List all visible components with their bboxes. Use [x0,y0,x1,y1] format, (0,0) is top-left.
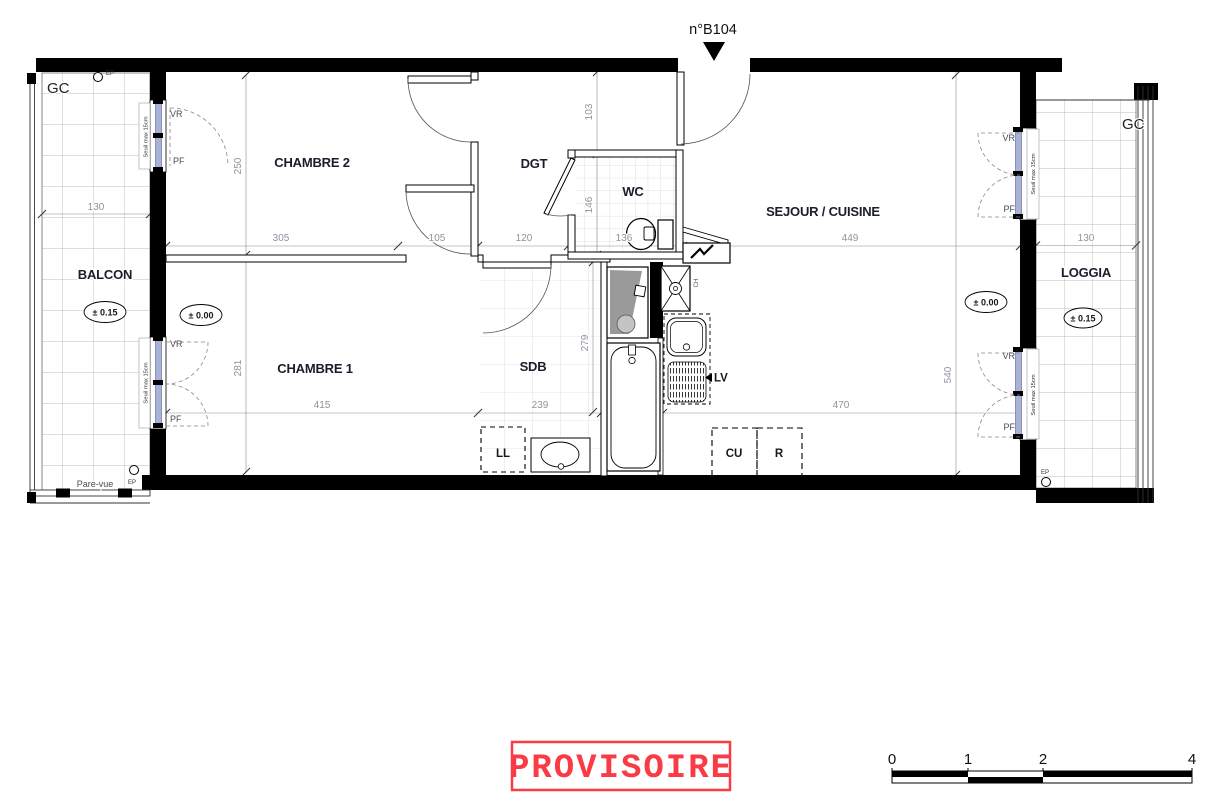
bathtub-icon [607,343,660,471]
chambre1-door-swing [406,192,472,254]
level-loggia: ± 0.15 [1064,308,1102,328]
svg-text:EP: EP [106,71,114,77]
dim-chambre2-width: 305 [273,233,290,244]
dim-balcon-width: 130 [88,202,105,213]
electrical-panel-icon [683,227,730,263]
chambre2-door-swing [408,79,471,142]
washing-machine-label: LL [496,448,510,460]
dim-sdb-width: 239 [532,400,549,411]
stamp-text: PROVISOIRE [509,750,733,788]
pf-label-d: PF [1003,422,1015,432]
scale-bar: 0 1 2 4 [888,751,1196,783]
dim-chambre2-height: 250 [233,157,244,174]
scale-label-1: 1 [964,751,972,768]
pf-label-c: PF [1003,204,1015,214]
room-label-chambre1: CHAMBRE 1 [277,361,352,376]
kitchen-sink-icon [664,314,710,404]
svg-text:± 0.00: ± 0.00 [974,298,999,308]
level-sejour: ± 0.00 [965,292,1007,313]
entrance-marker: n°B104 [689,22,737,61]
svg-text:± 0.15: ± 0.15 [1071,314,1096,324]
seuil-label-a: Seuil max 15cm [144,116,150,157]
seuil-label-d: Seuil max 15cm [1031,374,1037,415]
dim-dgt-width: 120 [516,233,533,244]
floor-plan-page: n°B104 CHAMBRE 2 DGT WC SEJOUR / CUISINE… [0,0,1207,800]
gc-right-label: GC [1122,116,1145,133]
pf-label-a: PF [173,156,185,166]
dishwasher-label: LV [714,373,728,385]
scale-label-0: 0 [888,751,896,768]
room-label-loggia: LOGGIA [1061,265,1112,280]
dim-dgt-height: 103 [584,103,595,120]
unit-number-label: n°B104 [689,22,737,38]
dim-sejour-width: 449 [842,233,859,244]
chambre2-door-leaf [408,76,471,83]
room-label-chambre2: CHAMBRE 2 [274,155,349,170]
entrance-door-swing [681,74,750,144]
room-label-sdb: SDB [520,359,547,374]
seuil-label-c: Seuil max 15cm [1031,153,1037,194]
level-chambre1: ± 0.00 [180,305,222,326]
seuil-label-b: Seuil max 15cm [144,362,150,403]
entrance-door-leaf [677,72,684,145]
svg-text:EP: EP [128,480,136,486]
dim-door: 105 [429,233,446,244]
svg-text:± 0.00: ± 0.00 [189,311,214,321]
pf-label-b: PF [170,414,182,424]
provisoire-stamp: PROVISOIRE [509,742,733,790]
vr-label-d: VR [1002,351,1015,361]
dim-kitchen-width: 470 [833,400,850,411]
duct-shaft-icon [661,266,690,311]
dim-sdb-height: 279 [580,334,591,351]
room-label-balcon: BALCON [78,267,132,282]
shower-icon [607,267,648,338]
washbasin-icon [531,438,590,472]
svg-text:EP: EP [1041,470,1049,476]
dim-chambre1-width: 415 [314,400,331,411]
fridge-label: R [775,448,784,460]
dim-wc-height: 146 [584,196,595,213]
room-label-dgt: DGT [521,156,548,171]
cooktop-label: CU [726,448,743,460]
wc-door-swing [546,214,571,216]
vr-label-b: VR [170,339,183,349]
vr-label-a: VR [170,109,183,119]
interior-partitions [166,72,683,476]
dim-sejour-height: 540 [943,366,954,383]
pare-vue-label: Pare-vue [77,479,114,489]
floor-plan-drawing: n°B104 CHAMBRE 2 DGT WC SEJOUR / CUISINE… [0,0,1207,800]
vr-label-c: VR [1002,133,1015,143]
svg-text:± 0.15: ± 0.15 [93,308,118,318]
ch-duct-label: CH [694,279,700,288]
entrance-arrow-icon [703,42,725,61]
sdb-door-leaf [483,262,551,268]
room-label-sejour: SEJOUR / CUISINE [766,204,880,219]
toilet-icon [627,219,674,250]
dim-chambre1-height: 281 [233,359,244,376]
level-balcon: ± 0.15 [84,302,126,323]
scale-label-4: 4 [1188,751,1196,768]
dim-loggia-width: 130 [1078,233,1095,244]
wc-door-leaf [544,158,575,215]
dim-wc-width: 136 [616,233,633,244]
gc-left-label: GC [47,80,70,97]
room-label-wc: WC [622,184,644,199]
scale-label-2: 2 [1039,751,1047,768]
loggia-floor [1036,100,1136,488]
